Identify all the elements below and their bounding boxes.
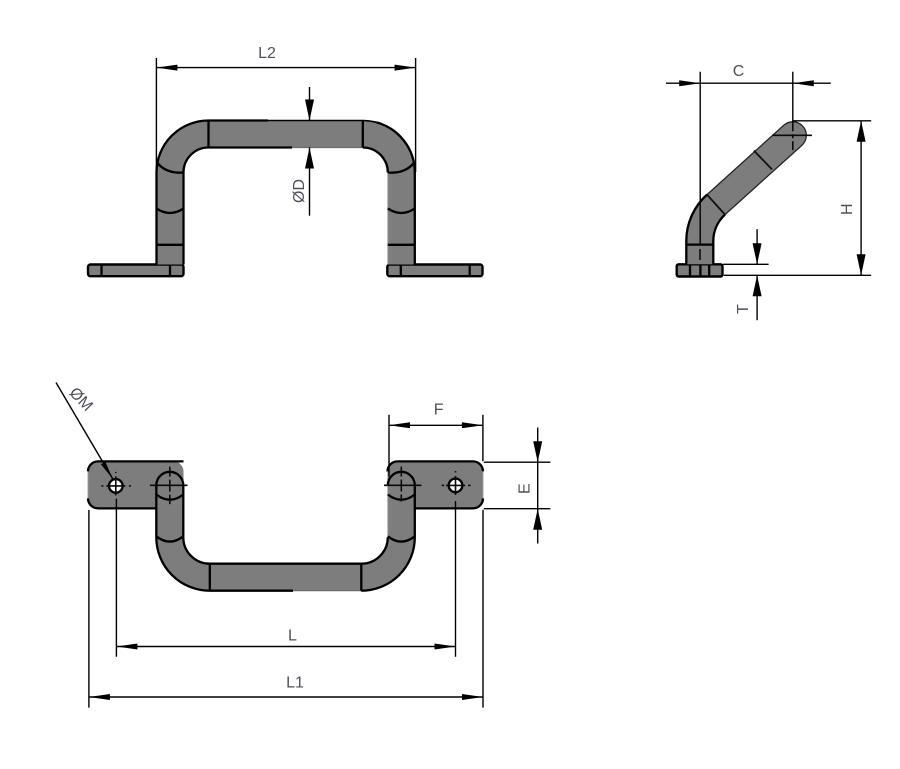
svg-text:T: T xyxy=(735,304,752,314)
svg-text:L: L xyxy=(288,628,297,645)
svg-text:C: C xyxy=(733,63,745,80)
svg-text:L1: L1 xyxy=(286,675,304,692)
svg-text:L2: L2 xyxy=(258,45,276,62)
svg-text:H: H xyxy=(839,203,856,215)
svg-text:F: F xyxy=(434,402,444,419)
svg-text:E: E xyxy=(517,483,534,494)
svg-text:ØD: ØD xyxy=(291,179,308,203)
